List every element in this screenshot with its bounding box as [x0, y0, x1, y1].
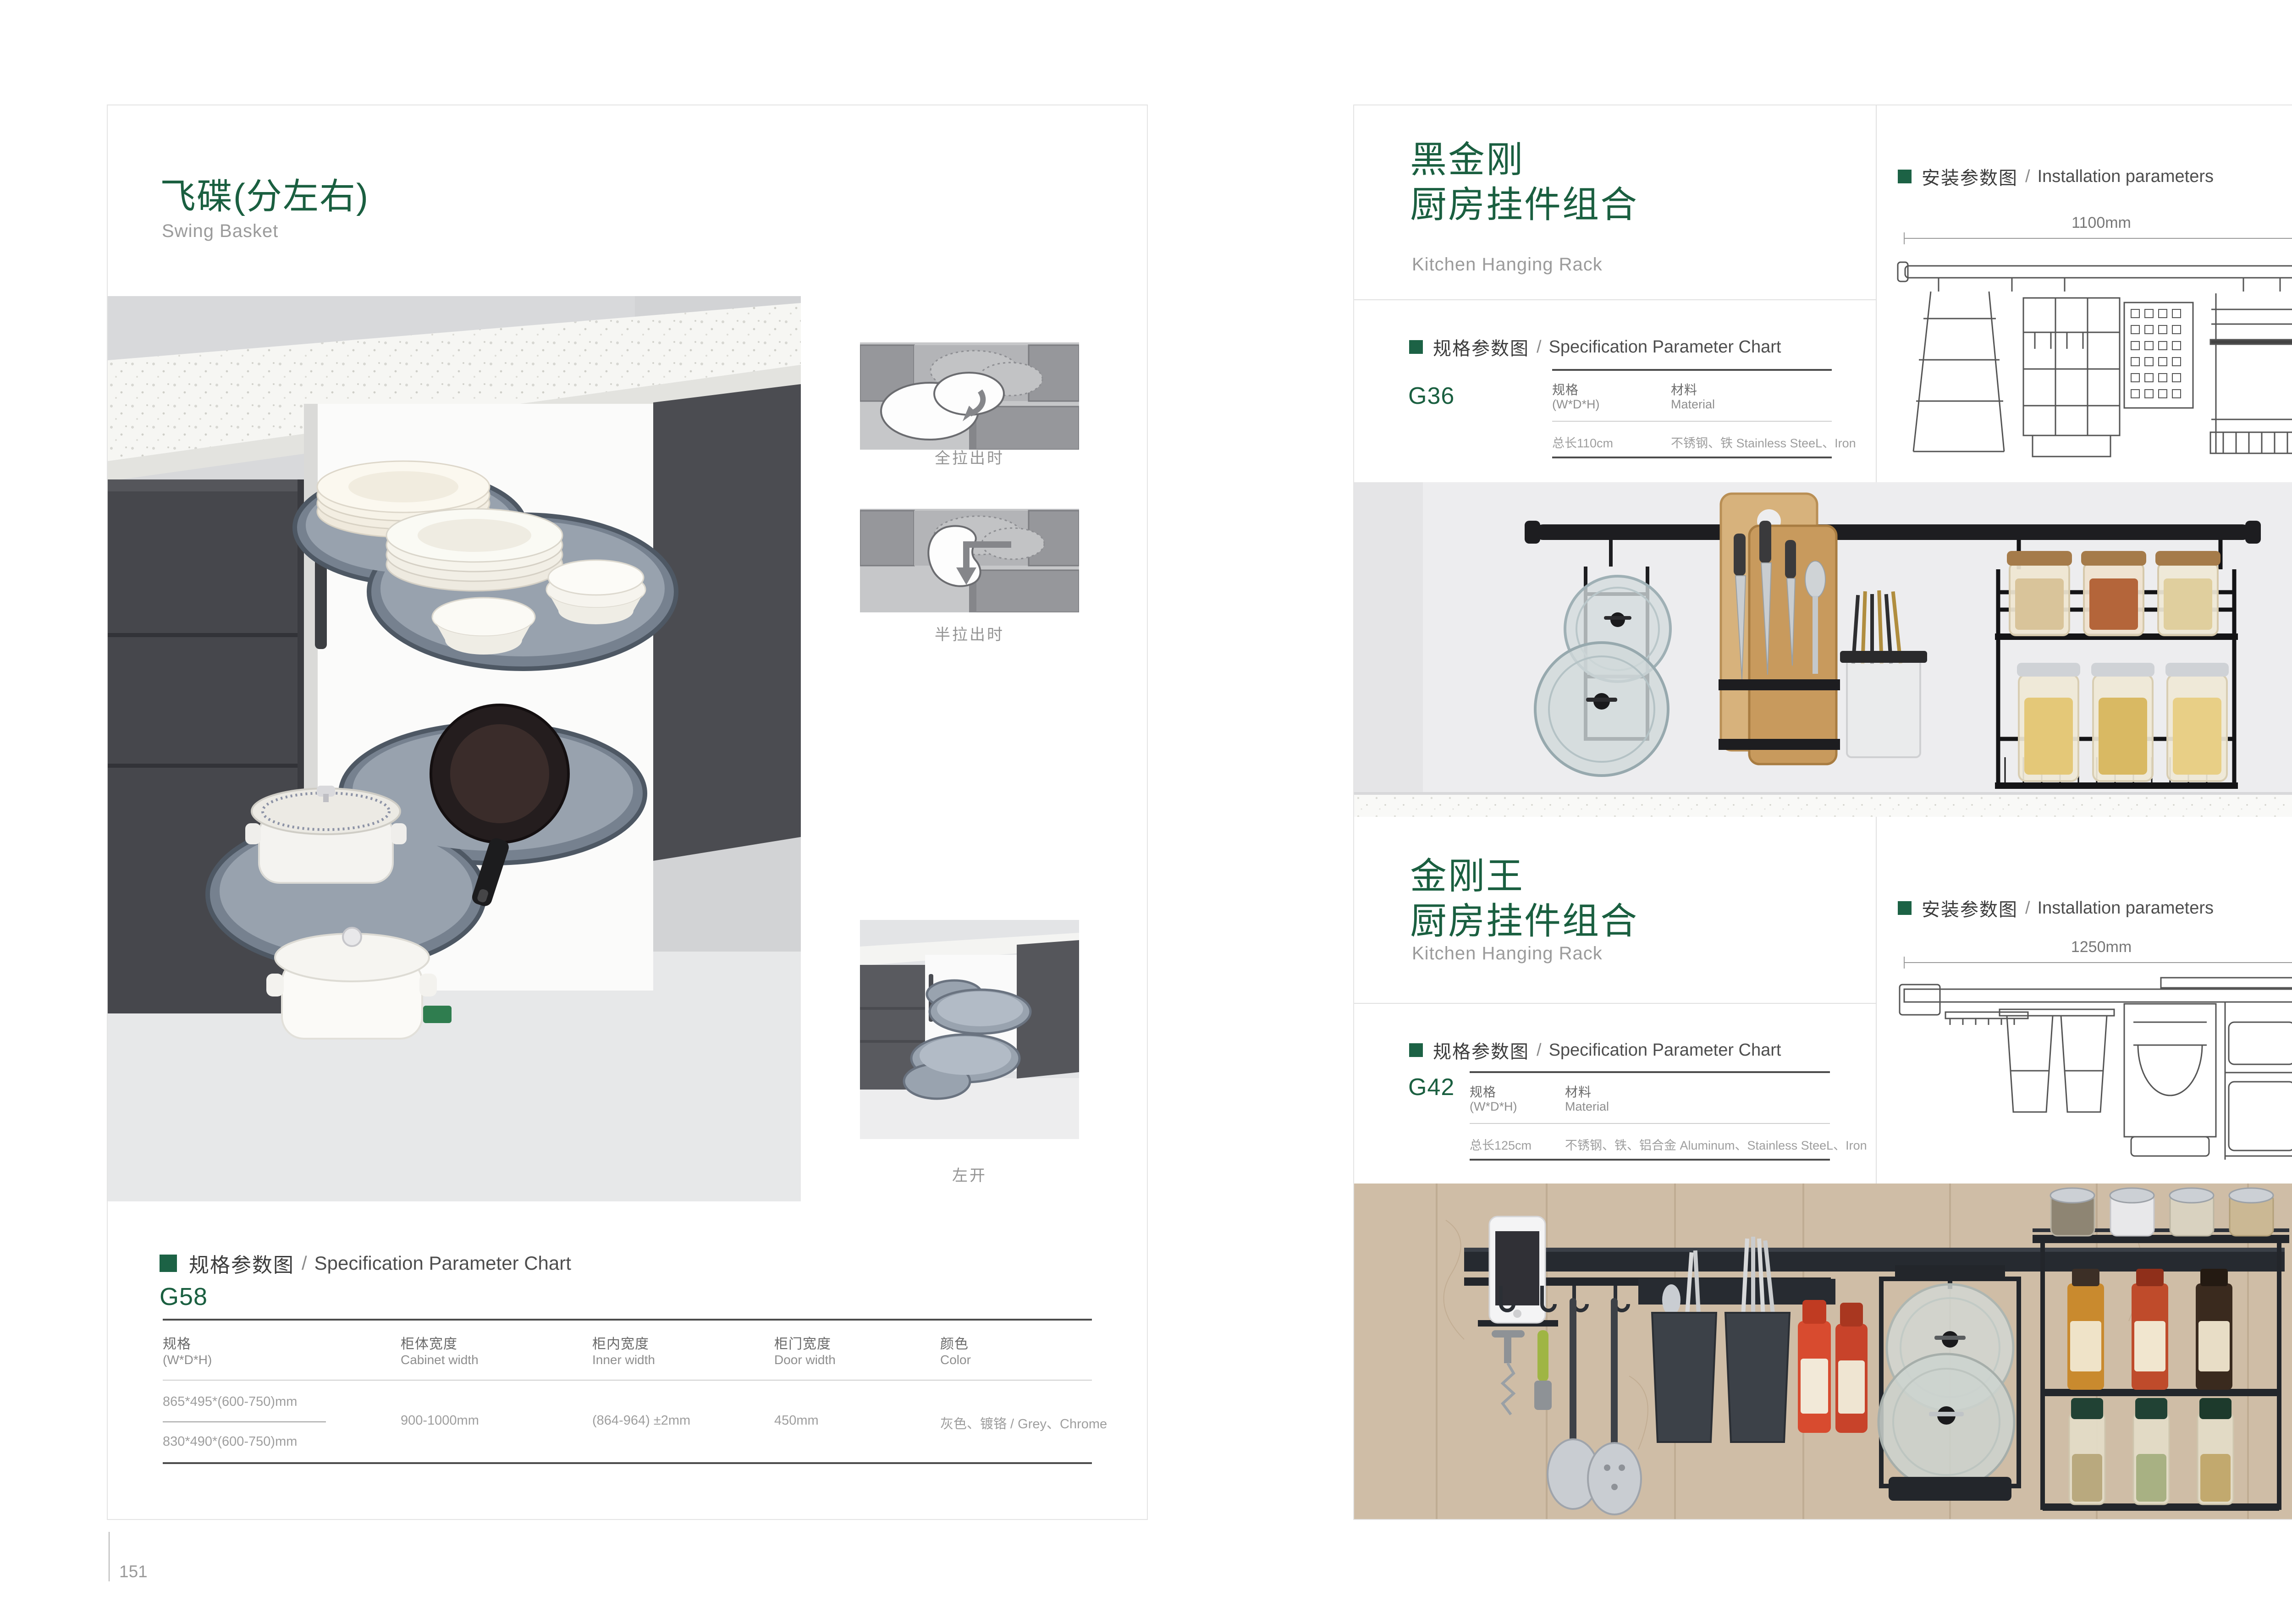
col-size-cn: 规格 — [1470, 1082, 1496, 1101]
section-title-en: Specification Parameter Chart — [314, 1252, 571, 1274]
left-spec-section-header: 规格参数图 / Specification Parameter Chart — [160, 1249, 571, 1278]
col-inner-en: Inner width — [592, 1353, 655, 1367]
diagram-full-out — [860, 342, 1079, 450]
swing-basket-photo — [108, 296, 801, 1202]
table-header-rule — [1470, 1123, 1830, 1124]
section-title-cn: 安装参数图 — [1922, 163, 2018, 190]
col-color-en: Color — [940, 1353, 971, 1367]
table-bottom-rule — [1470, 1159, 1830, 1161]
section-marker-icon — [1898, 170, 1912, 183]
section-title-cn: 规格参数图 — [1433, 1037, 1529, 1063]
diagram-half-out-label: 半拉出时 — [860, 622, 1079, 644]
section-title-en: Specification Parameter Chart — [1549, 337, 1781, 357]
swing-basket-photo-art — [108, 296, 801, 1202]
section-title-cn: 安装参数图 — [1922, 895, 2018, 921]
product2-install-diagram: 1250mm 430mm — [1895, 930, 2292, 1178]
divider-title-top — [1354, 299, 1876, 300]
col-color-cn: 颜色 — [940, 1332, 969, 1353]
cell-door-width: 450mm — [774, 1413, 819, 1428]
table-header-rule — [1552, 421, 1832, 422]
product2-title-en: Kitchen Hanging Rack — [1412, 943, 1603, 964]
dim-width-label: 1250mm — [2071, 938, 2132, 956]
col-inner-cn: 柜内宽度 — [592, 1332, 649, 1353]
table-header-rule — [163, 1380, 1092, 1381]
cell-material: 不锈钢、铁、铝合金 Aluminum、Stainless SteeL、Iron — [1565, 1135, 1867, 1153]
table-top-rule — [1552, 369, 1832, 371]
product1-title-en: Kitchen Hanging Rack — [1412, 254, 1603, 275]
col-door-cn: 柜门宽度 — [774, 1332, 831, 1353]
divider-title-bottom — [1354, 1003, 1876, 1004]
section-title-en: Installation parameters — [2038, 167, 2214, 187]
left-model-code: G58 — [160, 1283, 208, 1311]
section-marker-icon — [1898, 901, 1912, 915]
cell-size-2: 830*490*(600-750)mm — [163, 1434, 297, 1449]
product2-photo — [1354, 1184, 2292, 1519]
section-title-en: Installation parameters — [2038, 898, 2214, 918]
cell-inner-width: (864-964) ±2mm — [592, 1413, 690, 1428]
table-top-rule — [163, 1319, 1092, 1321]
product1-install-header: 安装参数图 / Installation parameters — [1898, 163, 2214, 190]
col-material-cn: 材料 — [1565, 1082, 1592, 1101]
section-title-cn: 规格参数图 — [189, 1249, 294, 1278]
product2-spec-table: 规格 (W*D*H) 材料 Material 总长125cm 不锈钢、铁、铝合金… — [1470, 1071, 1830, 1161]
table-bottom-rule — [1552, 457, 1832, 458]
section-marker-icon — [1409, 1043, 1423, 1057]
section-title-en: Specification Parameter Chart — [1549, 1040, 1781, 1060]
dim-width-label: 1100mm — [2072, 214, 2131, 231]
product1-photo — [1354, 482, 2292, 817]
section-title-cn: 规格参数图 — [1433, 334, 1529, 360]
section-marker-icon — [160, 1255, 177, 1272]
product2-title-line1: 金刚王 — [1410, 854, 1638, 899]
left-page-number: 151 — [119, 1562, 148, 1581]
product1-title-cn: 黑金刚 厨房挂件组合 — [1410, 138, 1638, 227]
cell-size: 总长125cm — [1470, 1135, 1532, 1153]
col-door-en: Door width — [774, 1353, 836, 1367]
section-title-divider: / — [2025, 167, 2030, 187]
product1-install-diagram: 1100mm 420mm — [1895, 204, 2292, 474]
divider-vertical-top — [1876, 105, 1877, 482]
col-material-en: Material — [1565, 1100, 1609, 1114]
product1-spec-header: 规格参数图 / Specification Parameter Chart — [1409, 334, 1781, 360]
col-material-en: Material — [1671, 397, 1715, 412]
product2-title-cn: 金刚王 厨房挂件组合 — [1410, 854, 1638, 944]
catalog-spread: 飞碟(分左右) Swing Basket — [0, 0, 2292, 1624]
diagram-left-open-label: 左开 — [860, 1163, 1079, 1185]
col-cabinet-en: Cabinet width — [401, 1353, 479, 1367]
col-size-cn: 规格 — [1552, 380, 1579, 398]
section-title-divider: / — [1537, 337, 1542, 357]
table-top-rule — [1470, 1071, 1830, 1073]
left-spec-table: 规格 (W*D*H) 柜体宽度 Cabinet width 柜内宽度 Inner… — [163, 1319, 1092, 1464]
product1-title-line2: 厨房挂件组合 — [1410, 182, 1638, 227]
cell-size: 总长110cm — [1552, 433, 1613, 451]
left-page-subtitle: Swing Basket — [162, 221, 278, 242]
product2-model-code: G42 — [1408, 1073, 1455, 1101]
diagram-half-out — [860, 509, 1079, 612]
product1-spec-table: 规格 (W*D*H) 材料 Material 总长110cm 不锈钢、铁 Sta… — [1552, 369, 1832, 458]
col-size-en: (W*D*H) — [1552, 397, 1599, 412]
divider-vertical-bottom — [1876, 817, 1877, 1184]
col-size-en: (W*D*H) — [163, 1353, 212, 1367]
cell-color: 灰色、镀铬 / Grey、Chrome — [940, 1413, 1107, 1432]
section-marker-icon — [1409, 340, 1423, 354]
section-title-divider: / — [1537, 1040, 1542, 1060]
col-cabinet-cn: 柜体宽度 — [401, 1332, 457, 1353]
left-page: 飞碟(分左右) Swing Basket — [107, 105, 1148, 1520]
right-page: 黑金刚 厨房挂件组合 Kitchen Hanging Rack 规格参数图 / … — [1353, 105, 2292, 1520]
product1-title-line1: 黑金刚 — [1410, 138, 1638, 182]
product2-install-header: 安装参数图 / Installation parameters — [1898, 895, 2214, 921]
product2-spec-header: 规格参数图 / Specification Parameter Chart — [1409, 1037, 1781, 1063]
col-size-cn: 规格 — [163, 1332, 191, 1353]
table-bottom-rule — [163, 1462, 1092, 1464]
cell-cabinet-width: 900-1000mm — [401, 1413, 479, 1428]
cell-material: 不锈钢、铁 Stainless SteeL、Iron — [1671, 433, 1856, 451]
col-material-cn: 材料 — [1671, 380, 1697, 398]
diagram-full-out-label: 全拉出时 — [860, 446, 1079, 468]
size-divider-rule — [163, 1421, 326, 1422]
product2-title-line2: 厨房挂件组合 — [1410, 899, 1638, 944]
cell-size-1: 865*495*(600-750)mm — [163, 1394, 297, 1409]
left-page-title: 飞碟(分左右) — [160, 168, 369, 219]
product1-model-code: G36 — [1408, 382, 1455, 410]
section-title-divider: / — [2025, 898, 2030, 918]
col-size-en: (W*D*H) — [1470, 1100, 1517, 1114]
diagram-left-open — [860, 920, 1079, 1139]
section-title-divider: / — [302, 1252, 307, 1274]
left-pagenum-rule — [109, 1532, 110, 1581]
